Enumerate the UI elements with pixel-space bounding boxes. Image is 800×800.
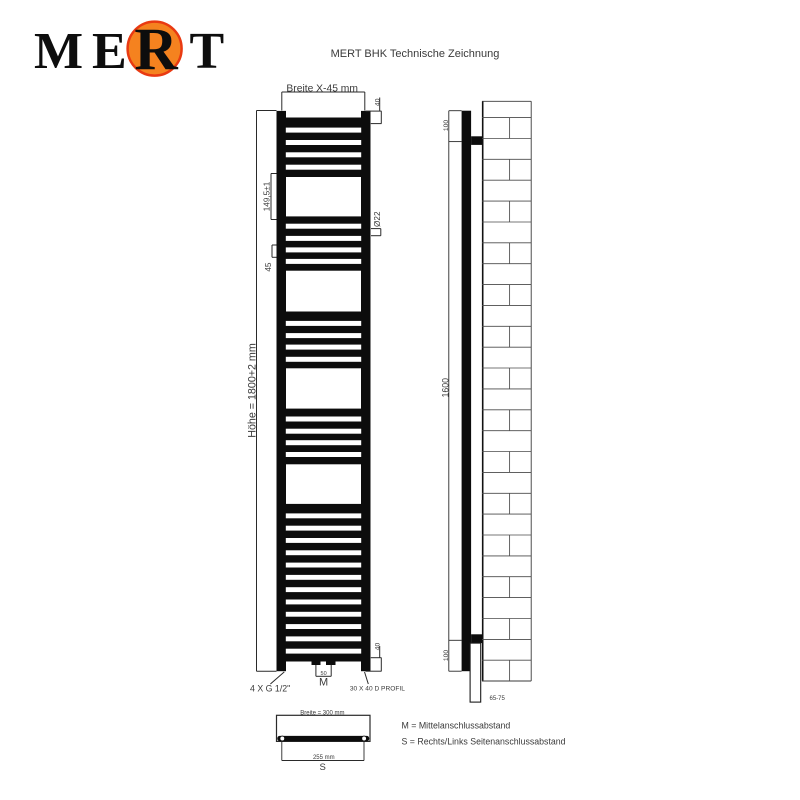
svg-text:Höhe = 1800+2 mm: Höhe = 1800+2 mm (247, 343, 259, 438)
svg-text:40: 40 (374, 643, 381, 651)
svg-text:T: T (189, 23, 224, 80)
svg-text:M = Mittelanschlussabstand: M = Mittelanschlussabstand (402, 721, 511, 731)
svg-text:R: R (134, 17, 178, 83)
svg-text:Breite = 300 mm: Breite = 300 mm (300, 711, 344, 717)
svg-text:65-75: 65-75 (490, 696, 506, 702)
svg-text:MERT BHK Technische Zeichnung: MERT BHK Technische Zeichnung (331, 48, 500, 60)
svg-text:100: 100 (443, 650, 450, 662)
svg-text:1600: 1600 (440, 378, 450, 398)
svg-text:255 mm: 255 mm (313, 755, 335, 761)
svg-text:30 X 40 D PROFIL: 30 X 40 D PROFIL (350, 685, 405, 692)
svg-text:E: E (92, 23, 127, 80)
svg-text:S: S (320, 762, 326, 773)
svg-text:S = Rechts/Links Seitenanschlu: S = Rechts/Links Seitenanschlussabstand (402, 736, 566, 746)
svg-text:149,5±1: 149,5±1 (262, 181, 271, 211)
svg-text:Ø22: Ø22 (373, 211, 382, 227)
svg-text:100: 100 (443, 120, 450, 132)
svg-text:M: M (319, 677, 328, 689)
svg-text:40: 40 (374, 98, 381, 106)
svg-text:Breite X-45 mm: Breite X-45 mm (286, 83, 358, 94)
svg-text:4 X G 1/2": 4 X G 1/2" (250, 684, 290, 694)
svg-text:45: 45 (264, 262, 273, 272)
svg-text:M: M (34, 23, 83, 80)
